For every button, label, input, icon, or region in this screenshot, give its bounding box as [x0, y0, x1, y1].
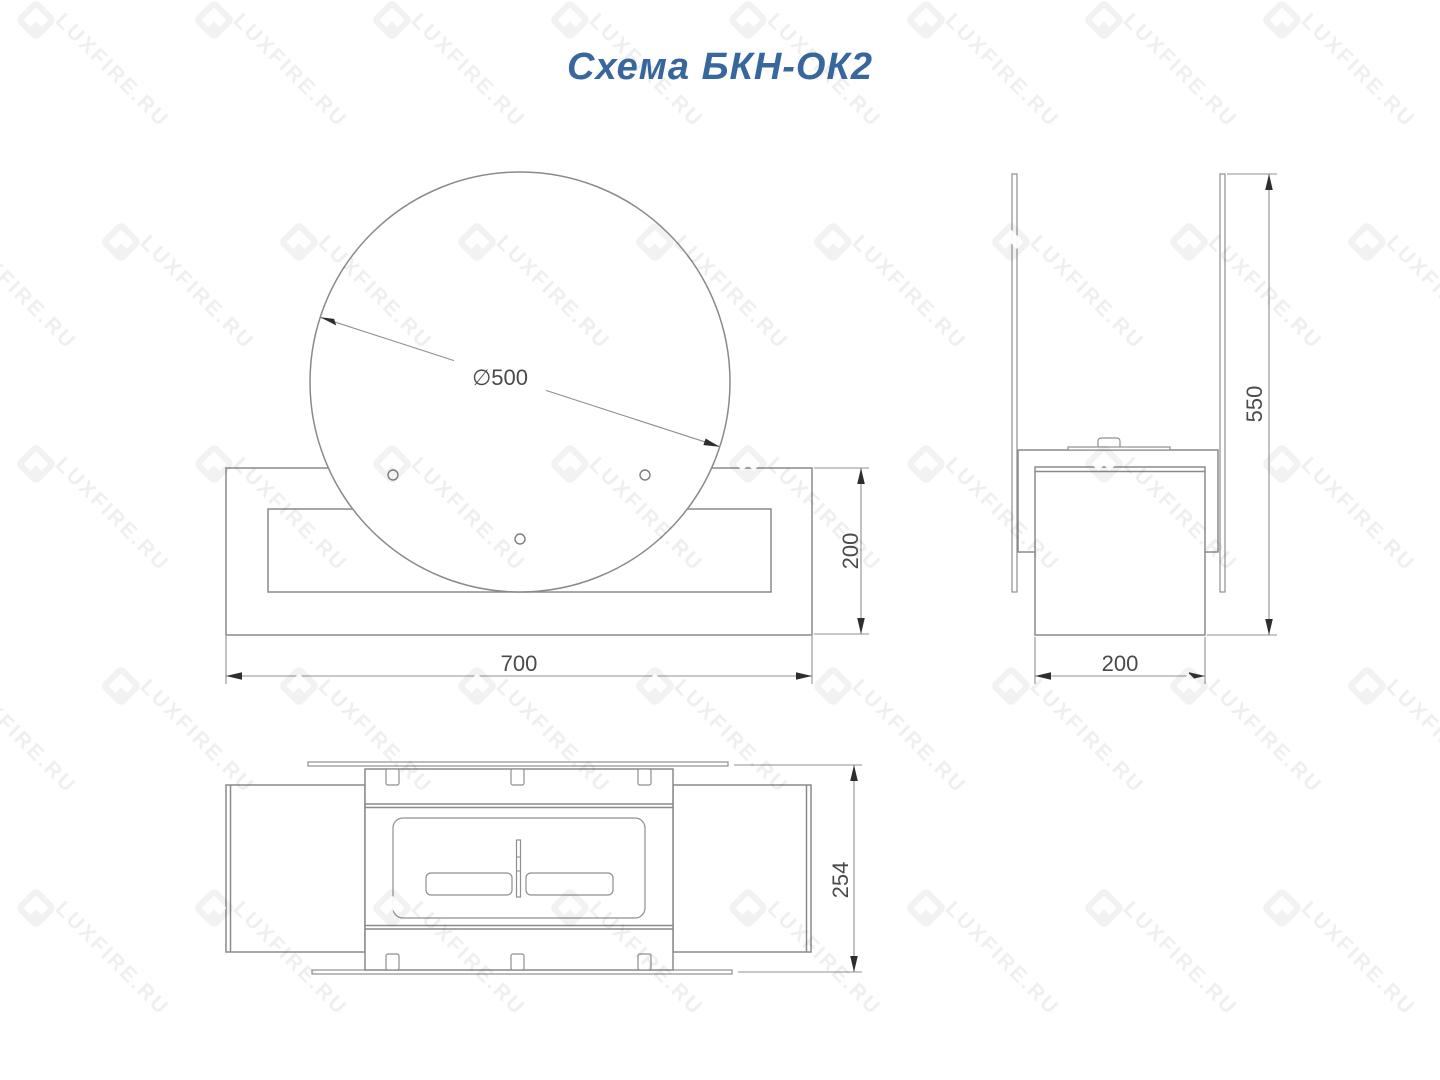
mount-hole: [388, 470, 398, 480]
arrowhead: [1265, 174, 1273, 190]
mount-hole: [515, 534, 525, 544]
plan-tab: [386, 954, 399, 970]
dim-label-front-width: 700: [501, 651, 538, 676]
top-view: 254: [226, 762, 862, 974]
side-top-plate: [1068, 447, 1170, 450]
dimension-front-width: 700: [226, 636, 812, 684]
dimension-side-depth: 200: [1035, 637, 1205, 684]
plan-tab: [511, 769, 524, 785]
dimension-side-height: 550: [1207, 174, 1277, 635]
mount-hole: [640, 470, 650, 480]
plan-glass-edge-top: [308, 762, 728, 766]
drawing-title: Схема БКН-ОК2: [567, 46, 873, 88]
dim-label-side-depth: 200: [1102, 651, 1139, 676]
plan-burner-slot-right: [526, 873, 613, 895]
plan-tab: [638, 769, 651, 785]
side-glass-panel-right: [1220, 174, 1225, 592]
arrowhead: [857, 468, 865, 484]
arrowhead: [226, 672, 242, 680]
dim-label-diameter: ∅500: [472, 365, 528, 390]
plan-wing-left: [226, 785, 365, 952]
arrowhead: [1035, 672, 1051, 680]
arrowhead: [796, 672, 812, 680]
arrowhead: [850, 956, 858, 972]
side-glass-panel-left: [1012, 174, 1017, 592]
arrowhead: [850, 765, 858, 781]
plan-wing-right: [673, 785, 811, 952]
plan-tab: [511, 954, 524, 970]
plan-tab: [638, 954, 651, 970]
arrowhead: [1265, 619, 1273, 635]
side-box: [1035, 467, 1205, 635]
plan-burner-slot-left: [426, 873, 512, 895]
plan-slider-handle: [517, 840, 521, 897]
cad-drawing: Схема БКН-ОК2 ∅500 700: [0, 0, 1440, 1080]
dimension-front-height: 200: [814, 468, 869, 634]
side-view: 550 200: [1012, 174, 1277, 684]
dim-label-top-depth: 254: [828, 862, 853, 899]
front-view: ∅500 700 200: [226, 172, 869, 684]
arrowhead: [1189, 672, 1205, 680]
dim-label-front-height: 200: [838, 533, 863, 570]
drawing-canvas: Схема БКН-ОК2 ∅500 700: [0, 0, 1440, 1080]
arrowhead: [857, 618, 865, 634]
dim-label-side-height: 550: [1242, 386, 1267, 423]
plan-tab: [386, 769, 399, 785]
